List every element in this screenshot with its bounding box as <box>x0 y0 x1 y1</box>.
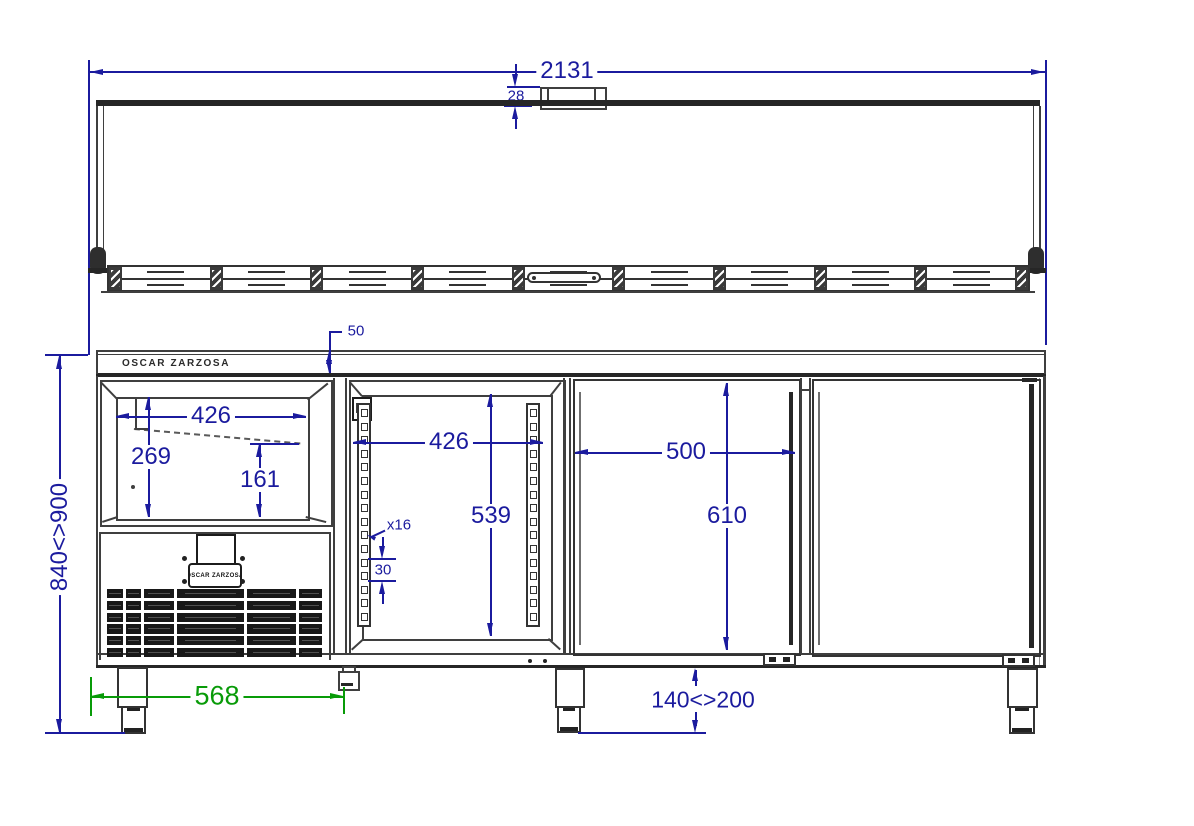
pan-bottom <box>927 278 1015 291</box>
pan-top <box>223 267 311 278</box>
rail-slot <box>361 463 368 471</box>
grille-cell <box>107 613 123 622</box>
rail-slot <box>530 599 537 607</box>
grille-cell <box>107 636 123 645</box>
arrowhead-right-icon <box>782 449 795 455</box>
pan-dash <box>651 271 688 273</box>
leg-foot <box>121 706 146 734</box>
foot-band <box>124 728 142 732</box>
rail-slot <box>361 613 368 621</box>
grille-cell <box>177 589 244 598</box>
sensor-line-v <box>135 398 137 429</box>
grille-cell <box>177 624 244 633</box>
divider-connector <box>800 389 811 391</box>
pan-top <box>927 267 1015 278</box>
drain-foot <box>338 671 360 691</box>
grille-cell <box>107 648 123 657</box>
rail-pan-segment <box>424 267 512 290</box>
rail-separator <box>512 267 525 290</box>
leg-foot <box>1009 706 1035 734</box>
rail-separator <box>411 267 424 290</box>
rail-slot <box>530 545 537 553</box>
badge-screw <box>240 579 245 584</box>
rail-slot <box>530 463 537 471</box>
arrowhead-down-icon <box>487 623 493 636</box>
grille-cell <box>144 601 174 610</box>
hinge-mark <box>769 657 776 662</box>
dim-door-height: 610 <box>703 504 751 528</box>
rail-slot <box>361 409 368 417</box>
hinge-mark <box>783 657 790 662</box>
pan-top <box>122 267 210 278</box>
rail-pan-segment <box>323 267 411 290</box>
worktop-front-edge <box>96 373 1046 377</box>
grille-cell <box>107 589 123 598</box>
hinge-mark <box>1022 658 1029 663</box>
pan-dash <box>852 271 889 273</box>
rail-slot <box>530 518 537 526</box>
rail-slot <box>361 518 368 526</box>
grille-cell <box>126 589 141 598</box>
rail-pan-segment <box>625 267 713 290</box>
pan-top <box>323 267 411 278</box>
dim-door-width: 500 <box>662 440 710 464</box>
section-divider <box>333 378 335 654</box>
arrowhead-up-icon <box>723 383 729 396</box>
pan-dash <box>651 284 688 286</box>
arrowhead-right-icon <box>330 693 343 699</box>
arrowhead-up-icon <box>56 356 62 369</box>
door-edge-line <box>579 392 581 645</box>
dim-overall-height-range: 840<>900 <box>48 479 72 595</box>
rail-slot <box>530 477 537 485</box>
foot-band <box>127 708 140 711</box>
grille-cell <box>299 601 322 610</box>
dim-glass-lid-width: 426 <box>187 404 235 428</box>
door-hinge-band <box>1029 384 1034 648</box>
dim-compartment-height: 539 <box>467 504 515 528</box>
brand-logo: OSCAR ZARZOSA <box>122 358 230 369</box>
rail-slot <box>361 450 368 458</box>
sensor-line-h <box>135 428 149 430</box>
rail-slot <box>361 491 368 499</box>
worktop-right-side <box>1044 350 1046 374</box>
floor-reference-line <box>578 732 706 734</box>
pan-dash <box>349 271 386 273</box>
arrowhead-down-icon <box>145 504 151 517</box>
rail-pan-segment <box>122 267 210 290</box>
pan-dash <box>248 271 285 273</box>
leg-upper <box>117 667 148 708</box>
pan-dash <box>550 284 587 286</box>
grille-cell <box>247 613 296 622</box>
dim-glass-lid-inner-height: 161 <box>236 468 284 492</box>
grille-cell <box>144 648 174 657</box>
screw-dot <box>543 659 547 663</box>
grille-cell <box>299 613 322 622</box>
drain-foot-band <box>341 683 353 686</box>
rail-slot <box>530 409 537 417</box>
rail-slot <box>530 613 537 621</box>
pan-dash <box>852 284 889 286</box>
height-ext-tick-bottom <box>45 732 125 734</box>
grille-cell <box>144 613 174 622</box>
dim-leg-height-range: 140<>200 <box>647 689 759 712</box>
pan-bottom <box>625 278 713 291</box>
badge-screw <box>240 556 245 561</box>
door-hinge-detail <box>1002 654 1035 667</box>
cabinet-right-edge <box>1043 376 1046 668</box>
lid-handle <box>540 87 607 110</box>
foot-band <box>560 727 578 731</box>
door-edge-line <box>818 392 820 645</box>
arrowhead-up-icon <box>145 397 151 410</box>
rail-separator <box>814 267 827 290</box>
arrowhead-right-icon <box>530 439 543 445</box>
rail-separator <box>713 267 726 290</box>
rail-slot <box>530 531 537 539</box>
grille-cell <box>144 589 174 598</box>
rail-separator <box>914 267 927 290</box>
arrowhead-up-icon <box>487 394 493 407</box>
rail-slot <box>530 504 537 512</box>
grille-cell <box>247 624 296 633</box>
grille-cell <box>126 648 141 657</box>
hood-right-edge <box>1033 106 1041 251</box>
shelf-rail <box>357 403 371 627</box>
pan-bottom <box>424 278 512 291</box>
pan-dash <box>349 284 386 286</box>
door-hinge-band <box>789 392 793 645</box>
arrowhead-left-icon <box>116 413 129 419</box>
ventilation-grille <box>107 589 322 657</box>
rail-separator <box>210 267 223 290</box>
badge-screw <box>182 579 187 584</box>
leg-upper <box>1007 668 1038 708</box>
section-divider <box>809 378 811 654</box>
rail-slot <box>530 559 537 567</box>
grille-cell <box>299 648 322 657</box>
rail-slot <box>361 477 368 485</box>
door-panel <box>573 379 801 656</box>
grille-cell <box>247 636 296 645</box>
dim-overall-width: 2131 <box>536 59 597 83</box>
cabinet-left-edge <box>96 376 98 668</box>
pan-dash <box>147 271 184 273</box>
rail-slot <box>530 491 537 499</box>
rail-separator <box>310 267 323 290</box>
pan-dash <box>248 284 285 286</box>
arrowhead-left-icon <box>575 449 588 455</box>
pan-dash <box>449 271 486 273</box>
rail-slot <box>361 572 368 580</box>
foot-band <box>1012 728 1031 732</box>
handle-dim-vline-bottom <box>515 117 517 129</box>
door-top-corner-mark <box>1022 378 1037 382</box>
grille-cell <box>299 624 322 633</box>
rail-slot <box>361 599 368 607</box>
dim-rail-positions: x16 <box>383 518 415 533</box>
pan-dash <box>953 284 990 286</box>
door-hinge-detail <box>763 653 796 666</box>
dim-compartment-width: 426 <box>425 430 473 454</box>
badge-screw <box>182 556 187 561</box>
extension-line-left <box>88 60 90 355</box>
rail-slot <box>361 504 368 512</box>
pan-dash <box>751 271 788 273</box>
pan-dash <box>147 284 184 286</box>
grille-cell <box>126 601 141 610</box>
section-divider <box>345 378 347 654</box>
arrowhead-up-icon <box>256 444 262 457</box>
rail-handle <box>527 272 601 283</box>
leg-foot <box>557 706 581 733</box>
dim-rail-pitch: 30 <box>371 563 396 578</box>
grille-cell <box>247 589 296 598</box>
section-divider <box>800 378 802 654</box>
worktop-left-side <box>96 350 98 374</box>
grille-cell <box>126 613 141 622</box>
arrowhead-up-icon <box>692 668 698 681</box>
height-ext-tick-top <box>45 354 88 356</box>
arrowhead-right-icon <box>293 413 306 419</box>
worktop-second-line <box>96 354 1046 355</box>
grille-cell <box>299 589 322 598</box>
rail-slot <box>361 586 368 594</box>
brand-badge-text: OSCAR ZARZOSA <box>188 573 242 579</box>
arrowhead-down-icon <box>326 360 332 373</box>
grille-cell <box>126 624 141 633</box>
grille-cell <box>247 601 296 610</box>
grille-cell <box>177 601 244 610</box>
rail-separator <box>1015 267 1028 290</box>
arrowhead-left-icon <box>91 693 104 699</box>
grille-cell <box>299 636 322 645</box>
hood-left-edge <box>96 106 104 251</box>
rail-pan-segment <box>827 267 915 290</box>
pan-dash <box>449 284 486 286</box>
rail-slot <box>361 423 368 431</box>
arrowhead-down-icon <box>512 74 518 87</box>
foot-band <box>1015 708 1029 711</box>
grille-cell <box>126 636 141 645</box>
worktop-dim-bracket-h <box>329 331 342 333</box>
grille-cell <box>177 613 244 622</box>
rail-separator <box>612 267 625 290</box>
dim-glass-lid-depth: 269 <box>127 445 175 469</box>
screw-dot <box>528 659 532 663</box>
grille-cell <box>144 624 174 633</box>
pan-bottom <box>726 278 814 291</box>
pan-dash <box>751 284 788 286</box>
grille-cell <box>107 624 123 633</box>
pan-top <box>424 267 512 278</box>
dim-worktop-thickness: 50 <box>344 324 369 339</box>
section-divider <box>569 378 571 654</box>
grille-cell <box>177 648 244 657</box>
pan-bottom <box>122 278 210 291</box>
pan-dash <box>953 271 990 273</box>
pan-top <box>827 267 915 278</box>
shelf-rail <box>526 403 540 627</box>
rail-pan-segment <box>927 267 1015 290</box>
base-ext-tick-right <box>343 687 345 714</box>
hood-top-edge <box>96 100 1040 106</box>
pan-top <box>625 267 713 278</box>
rail-slot <box>530 450 537 458</box>
extension-line-right <box>1045 60 1047 345</box>
grille-cell <box>144 636 174 645</box>
pan-bottom <box>223 278 311 291</box>
door-panel <box>812 379 1041 657</box>
rail-slot <box>361 559 368 567</box>
leg-upper <box>555 668 585 708</box>
section-divider <box>563 378 565 654</box>
hinge-mark <box>1008 658 1015 663</box>
rail-slot <box>530 423 537 431</box>
pan-bottom <box>323 278 411 291</box>
arrowhead-down-icon <box>256 504 262 517</box>
rail-slot <box>530 572 537 580</box>
rail-separator <box>109 267 122 290</box>
arrowhead-down-icon <box>723 637 729 650</box>
rail-pan-segment <box>223 267 311 290</box>
technical-drawing: 2131 28 OSCAR ZARZOSA 50 <box>0 0 1194 826</box>
arrowhead-down-icon <box>56 719 62 732</box>
foot-band <box>563 708 576 711</box>
grille-cell <box>177 636 244 645</box>
rail-under-line <box>101 291 1035 293</box>
arrowhead-right-icon <box>1031 69 1044 75</box>
arrowhead-left-icon <box>90 69 103 75</box>
grille-cell <box>107 601 123 610</box>
grille-cell <box>247 648 296 657</box>
pan-top <box>726 267 814 278</box>
pitch-vline-bottom <box>382 592 384 604</box>
detail-dot <box>131 485 135 489</box>
arrowhead-down-icon <box>379 546 385 559</box>
rail-slot <box>361 545 368 553</box>
rail-slot <box>530 586 537 594</box>
dim-base-width: 568 <box>190 683 243 710</box>
brand-badge: OSCAR ZARZOSA <box>188 563 242 588</box>
worktop-top-line <box>96 350 1046 352</box>
pan-bottom <box>827 278 915 291</box>
rail-pan-segment <box>726 267 814 290</box>
arrowhead-left-icon <box>353 439 366 445</box>
